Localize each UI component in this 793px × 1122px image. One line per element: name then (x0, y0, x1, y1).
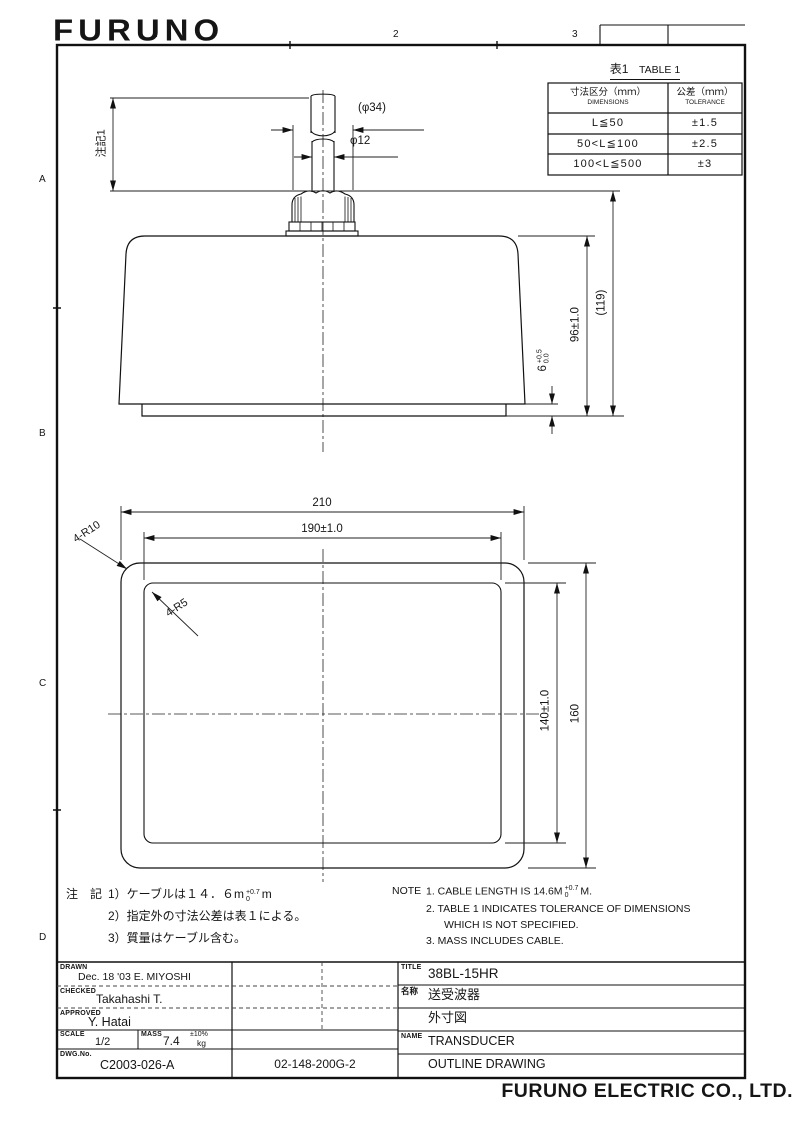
drawing-type-en: OUTLINE DRAWING (428, 1057, 546, 1071)
notes-en-line3: 3. MASS INCLUDES CABLE. (426, 935, 564, 947)
dim-119-label: (119) (595, 263, 608, 343)
checked-value: Takahashi T. (96, 993, 163, 1007)
notes-jp-line3: 3）質量はケーブル含む。 (108, 932, 246, 946)
table1-header-dimensions: 寸法区分（ｍｍ） DIMENSIONS (548, 88, 668, 106)
plan-view (80, 506, 596, 882)
mass-unit: kg (197, 1039, 206, 1049)
company-name: FURUNO ELECTRIC CO., LTD. (400, 1080, 793, 1102)
transducer-body (119, 236, 525, 416)
dim-96-label: 96±1.0 (569, 285, 582, 365)
dim-160-label: 160 (569, 674, 582, 754)
grid-row-label: C (39, 678, 46, 690)
grid-row-label: A (39, 174, 46, 186)
cable-gland (286, 191, 358, 236)
dim-dia12-label: φ12 (350, 135, 370, 148)
dim-6-label: 6+0.50.0 (537, 319, 552, 399)
table1-cell-tol: ±3 (668, 158, 742, 171)
border-ticks (53, 41, 497, 810)
notes-jp-line1: 1）ケーブルは１４．６m+0.70m (108, 888, 272, 903)
title-value: 38BL-15HR (428, 966, 499, 982)
checked-label: CHECKED (60, 988, 96, 996)
drawing-type-jp: 外寸図 (428, 1011, 467, 1026)
name-en-label: NAME (401, 1033, 422, 1041)
dim-190-label: 190±1.0 (282, 523, 362, 536)
notes-en-line1: 1. CABLE LENGTH IS 14.6M+0.70M. (426, 885, 592, 900)
inner-outline (144, 583, 501, 843)
grid-row-label: B (39, 428, 46, 440)
dim-dia34-label: (φ34) (358, 102, 386, 115)
dim-210-label: 210 (282, 497, 362, 510)
table1-cell-tol: ±1.5 (668, 117, 742, 130)
title-label: TITLE (401, 964, 421, 972)
dwg-no-label: DWG.No. (60, 1051, 92, 1059)
table1-title-en: TABLE 1 (639, 64, 680, 76)
table1-header-tolerance: 公差（ｍｍ） TOLERANCE (668, 88, 742, 106)
scale-label: SCALE (60, 1031, 85, 1039)
table1-title-jp: 表1 (610, 62, 629, 76)
name-jp-value: 送受波器 (428, 988, 480, 1003)
mass-value: 7.4 (163, 1035, 180, 1049)
approved-value: Y. Hatai (88, 1015, 131, 1029)
table1-cell-tol: ±2.5 (668, 138, 742, 151)
drawing-sheet: FURUNO 1 2 3 A B C D FURUNO ELECTRIC CO.… (0, 0, 793, 1122)
notes-jp-heading: 注 記 (66, 888, 102, 902)
dim-140-label: 140±1.0 (539, 671, 552, 751)
dim-note-ref-label: 注記1 (96, 103, 109, 183)
revision-box (600, 25, 745, 45)
furuno-logo: FURUNO (53, 13, 224, 48)
notes-en-line2b: WHICH IS NOT SPECIFIED. (444, 919, 579, 931)
dwg-no-value: C2003-026-A (100, 1058, 174, 1072)
table1-cell-range: 50<L≦100 (548, 138, 668, 151)
table1-cell-range: 100<L≦500 (548, 158, 668, 171)
table1-cell-range: L≦50 (548, 117, 668, 130)
table1-title: 表1 TABLE 1 (575, 60, 715, 78)
name-en-value: TRANSDUCER (428, 1034, 515, 1048)
drawn-value: Dec. 18 '03 E. MIYOSHI (78, 971, 191, 983)
ref-no-value: 02-148-200G-2 (240, 1058, 390, 1072)
notes-en-line2: 2. TABLE 1 INDICATES TOLERANCE OF DIMENS… (426, 903, 691, 915)
notes-jp-line2: 2）指定外の寸法公差は表１による。 (108, 910, 306, 924)
name-jp-label: 名称 (401, 987, 418, 997)
grid-col-label: 1 (152, 29, 158, 41)
centerlines (108, 549, 540, 882)
notes-en-heading: NOTE (392, 885, 421, 897)
grid-col-label: 3 (572, 29, 578, 41)
grid-col-label: 2 (393, 29, 399, 41)
mass-label: MASS (141, 1031, 162, 1039)
plan-view-dimensions (80, 506, 596, 868)
grid-row-label: D (39, 932, 46, 944)
scale-value: 1/2 (95, 1036, 110, 1049)
